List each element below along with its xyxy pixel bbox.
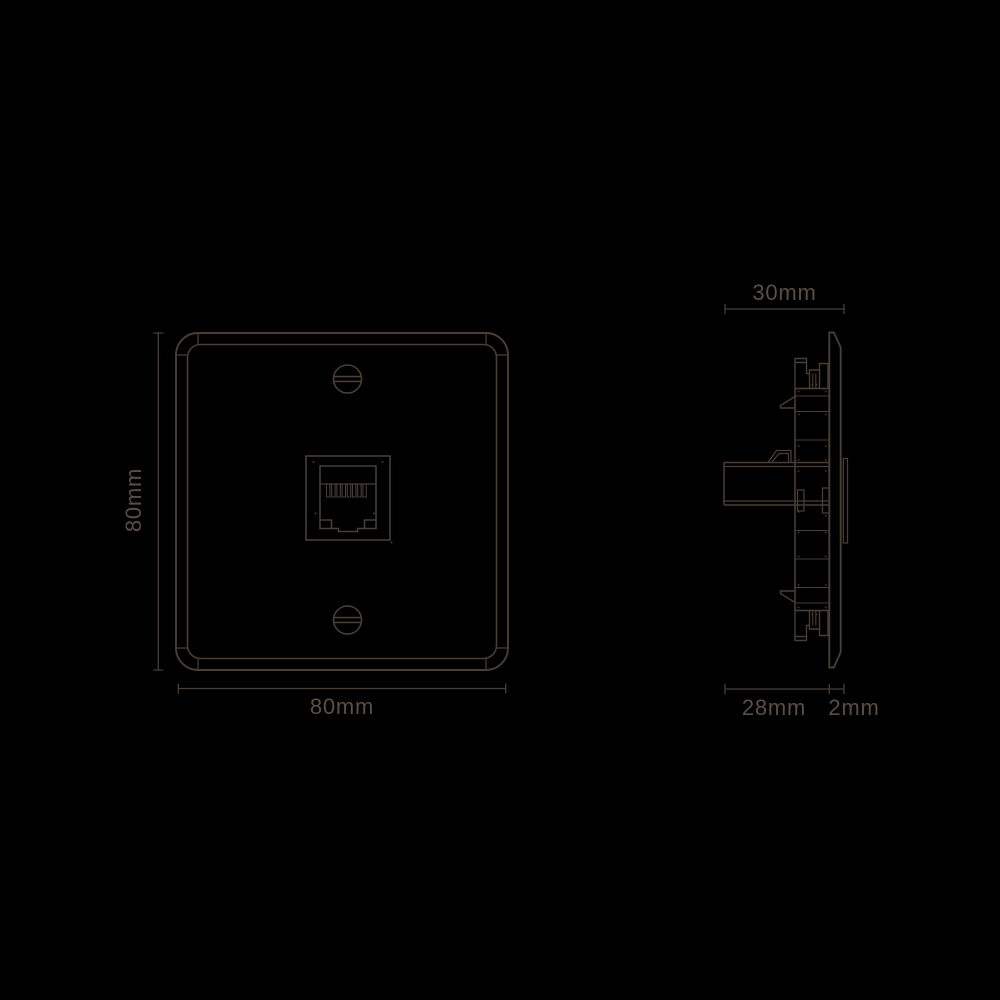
width-dimension-label: 80mm <box>310 694 374 719</box>
dimension-line <box>725 304 844 314</box>
latch-bump <box>768 451 791 463</box>
screw-top <box>334 365 362 393</box>
screw-bottom <box>334 606 362 634</box>
rj45-pins <box>327 484 367 497</box>
socket-aperture <box>320 466 376 532</box>
socket-surround <box>306 456 390 540</box>
mechanism-body <box>795 389 829 611</box>
plate-thickness-label: 2mm <box>828 695 879 720</box>
front-bezel-profile <box>843 459 847 544</box>
front-view: 80mm 80mm <box>121 333 508 719</box>
dimension-line <box>725 684 844 694</box>
rj45-socket <box>306 456 393 544</box>
mounting-clip-bottom <box>781 591 796 603</box>
technical-drawing-canvas: 80mm 80mm <box>0 0 1000 1000</box>
height-dimension: 80mm <box>121 333 163 670</box>
overall-depth-dimension: 30mm <box>725 280 844 314</box>
corner-ticks <box>176 333 508 670</box>
side-view: 30mm 28mm 2mm <box>724 280 880 720</box>
body-segment-lines <box>795 396 829 603</box>
bottom-depth-dimensions: 28mm 2mm <box>725 684 880 720</box>
mounting-clip-top <box>781 397 796 409</box>
height-dimension-label: 80mm <box>121 468 146 532</box>
overall-depth-label: 30mm <box>752 280 816 305</box>
wall-socket-drawing: 80mm 80mm <box>0 0 1000 1000</box>
dimension-line <box>178 684 505 694</box>
width-dimension: 80mm <box>178 684 505 720</box>
dimension-line <box>153 333 163 670</box>
faceplate-outer-outline <box>176 333 508 670</box>
side-faceplate-profile <box>829 333 840 668</box>
mechanism-depth-label: 28mm <box>742 695 806 720</box>
side-socket-block <box>724 451 829 506</box>
